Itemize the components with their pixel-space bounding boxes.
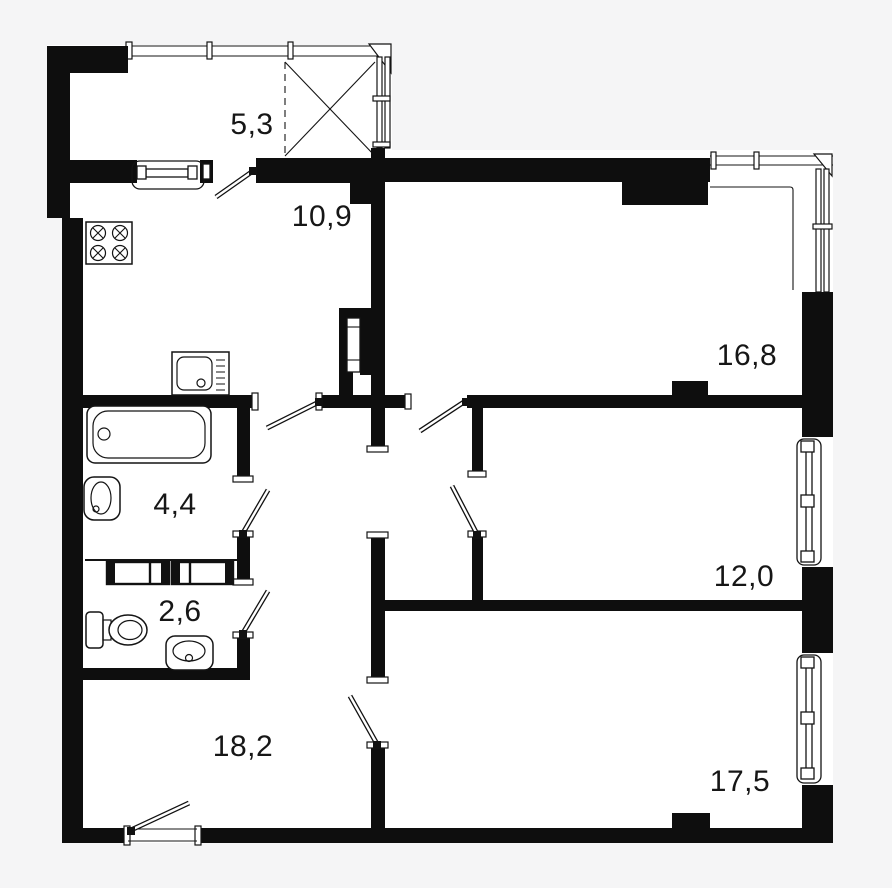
toilet-tank xyxy=(86,612,103,648)
door-hinge xyxy=(239,530,247,538)
wardrobe-units xyxy=(85,560,237,584)
wall-end-cap xyxy=(468,471,486,477)
door-frame-mark xyxy=(203,164,210,179)
shaft-box xyxy=(347,318,360,372)
balcony-glazing xyxy=(385,57,390,148)
room-label-bedroom-top-right: 16,8 xyxy=(717,339,777,372)
bathtub xyxy=(87,406,211,463)
wall-end-cap xyxy=(252,393,258,410)
wardrobe-box xyxy=(107,562,169,584)
stove xyxy=(86,222,132,264)
door-hinge xyxy=(127,827,135,835)
window-glazing xyxy=(816,169,821,292)
door-hinge xyxy=(315,398,323,406)
window-knob xyxy=(188,166,197,179)
wall-end-cap xyxy=(367,446,388,452)
door-hinge xyxy=(473,531,481,539)
toilet-bowl xyxy=(109,615,147,645)
room-label-toilet: 2,6 xyxy=(158,595,201,628)
door-hinge xyxy=(239,630,247,638)
floor-plan-drawing: 5,3 10,9 16,8 4,4 12,0 2,6 18,2 17,5 xyxy=(0,0,892,888)
bedroom-mid-window xyxy=(797,437,833,567)
floor-plan-page: 5,3 10,9 16,8 4,4 12,0 2,6 18,2 17,5 xyxy=(0,0,892,888)
window-knob xyxy=(801,441,814,452)
room-label-bedroom-bottom-right: 17,5 xyxy=(710,765,770,798)
room-label-bathroom: 4,4 xyxy=(153,488,196,521)
toilet xyxy=(86,612,147,648)
toilet-sink xyxy=(166,636,213,670)
wall-end-cap xyxy=(367,677,388,683)
glazing-tick xyxy=(373,96,390,101)
wardrobe-side xyxy=(107,562,115,584)
door-hinge xyxy=(249,167,257,175)
wall-end-cap xyxy=(405,394,411,409)
window-knob xyxy=(801,657,814,668)
door-hinge xyxy=(373,741,381,749)
wardrobe-side xyxy=(161,562,169,584)
glazing-tick xyxy=(813,224,832,229)
tub-outer xyxy=(87,406,211,463)
room-label-hall-living: 18,2 xyxy=(213,730,273,763)
balcony-glazing xyxy=(377,57,382,148)
railing-post xyxy=(711,152,716,169)
room-label-bedroom-mid-right: 12,0 xyxy=(714,560,774,593)
wardrobe-box xyxy=(172,562,233,584)
wardrobe-side xyxy=(172,562,180,584)
bedroom-bottom-window xyxy=(797,653,833,785)
wall-end-cap xyxy=(233,579,253,585)
window-glazing xyxy=(824,169,829,292)
wardrobe-side xyxy=(225,562,233,584)
bathroom-sink xyxy=(84,477,120,520)
window-knob xyxy=(801,768,814,779)
glazing-tick xyxy=(373,142,390,147)
kitchen-sink xyxy=(172,352,229,395)
railing-post xyxy=(288,42,293,59)
window-knob xyxy=(801,551,814,562)
window-knob xyxy=(801,495,814,507)
wall-end-cap xyxy=(367,532,388,538)
door-hinge xyxy=(462,398,470,406)
wall-end-cap xyxy=(233,476,253,482)
room-label-balcony: 5,3 xyxy=(230,108,273,141)
window-knob xyxy=(137,166,146,179)
window-rail xyxy=(146,169,188,177)
railing-post xyxy=(207,42,212,59)
room-label-kitchen-living: 10,9 xyxy=(292,200,352,233)
window-knob xyxy=(801,712,814,724)
railing-post xyxy=(754,152,759,169)
